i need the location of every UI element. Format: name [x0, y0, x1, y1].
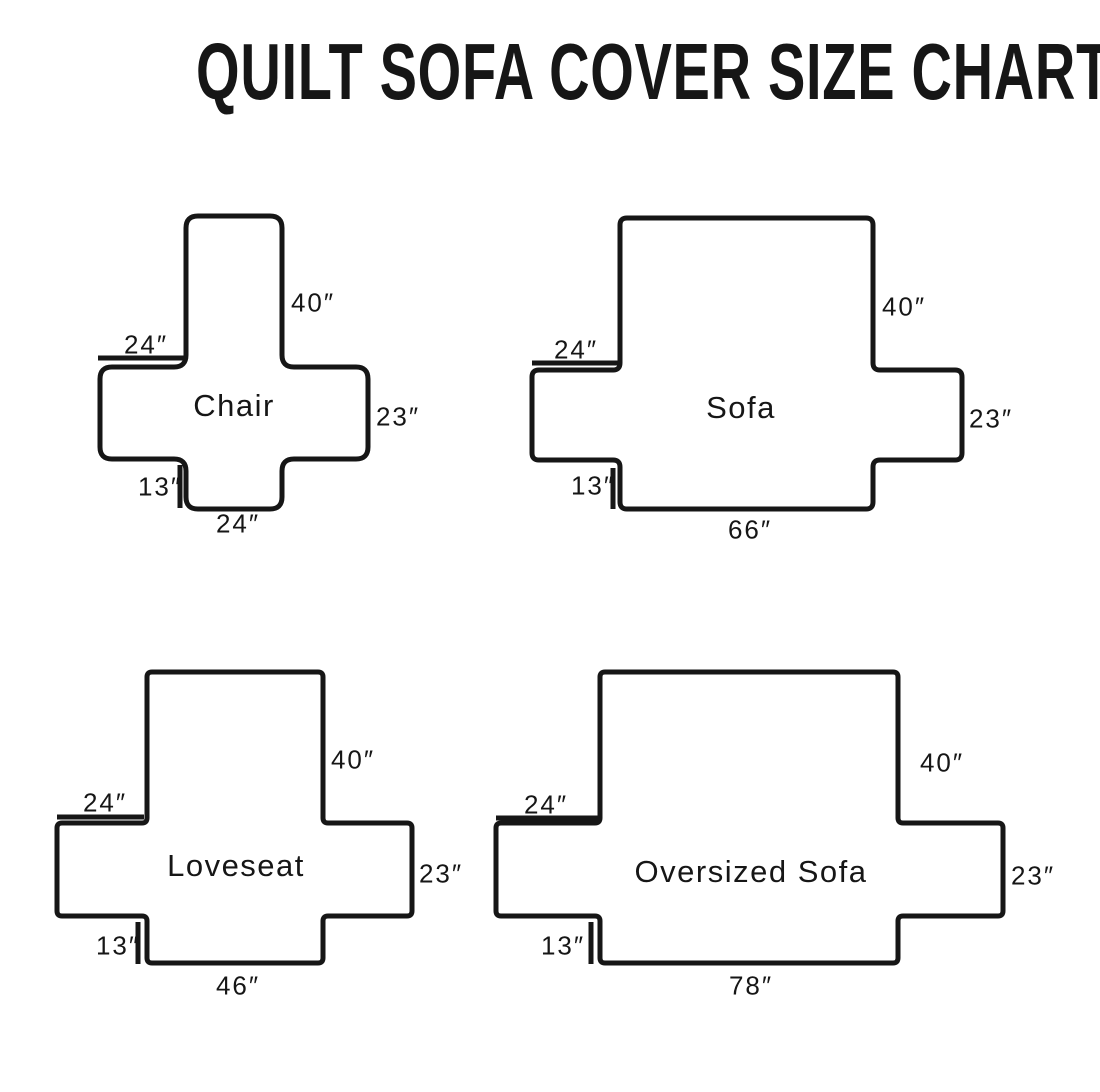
- loveseat-arm-width-label: 24″: [83, 788, 127, 819]
- loveseat-seat-width-label: 46″: [216, 971, 260, 1002]
- loveseat-label: Loveseat: [167, 848, 305, 884]
- oversized-sofa-back-height-label: 40″: [920, 748, 964, 779]
- sofa-arm-height-label: 23″: [969, 404, 1013, 435]
- chair-arm-height-label: 23″: [376, 402, 420, 433]
- sofa-label: Sofa: [706, 390, 776, 426]
- chair-label: Chair: [193, 388, 275, 424]
- sofa-back-height-label: 40″: [882, 292, 926, 323]
- oversized-sofa-arm-width-label: 24″: [524, 790, 568, 821]
- oversized-sofa-shape-group: [496, 672, 1003, 964]
- chair-outline: [100, 216, 368, 509]
- oversized-sofa-arm-height-label: 23″: [1011, 861, 1055, 892]
- loveseat-back-height-label: 40″: [331, 745, 375, 776]
- chair-back-height-label: 40″: [291, 288, 335, 319]
- sofa-front-drop-label: 13″: [571, 471, 615, 502]
- chair-seat-width-label: 24″: [216, 509, 260, 540]
- sofa-arm-width-label: 24″: [554, 335, 598, 366]
- oversized-sofa-label: Oversized Sofa: [635, 854, 868, 890]
- chair-arm-width-label: 24″: [124, 330, 168, 361]
- size-diagrams-svg: [0, 0, 1100, 1092]
- chair-front-drop-label: 13″: [138, 472, 182, 503]
- chair-shape-group: [98, 216, 368, 509]
- loveseat-arm-height-label: 23″: [419, 859, 463, 890]
- sofa-seat-width-label: 66″: [728, 515, 772, 546]
- size-chart-page: QUILT SOFA COVER SIZE CHART Chair 40″ 24…: [0, 0, 1100, 1092]
- oversized-sofa-seat-width-label: 78″: [729, 971, 773, 1002]
- loveseat-front-drop-label: 13″: [96, 931, 140, 962]
- oversized-sofa-front-drop-label: 13″: [541, 931, 585, 962]
